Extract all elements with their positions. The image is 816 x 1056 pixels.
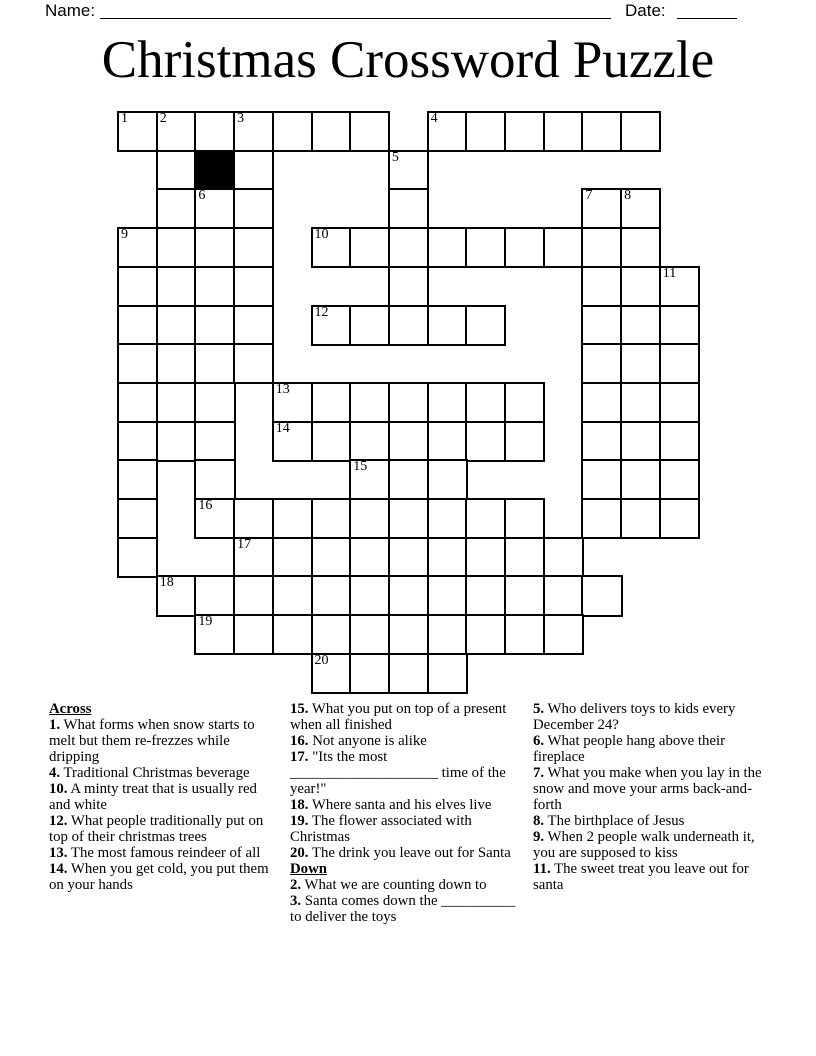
clue: 15. What you put on top of a present whe…	[290, 701, 528, 733]
grid-cell	[349, 421, 390, 462]
down-clues-part2: 5. Who delivers toys to kids every Decem…	[533, 701, 776, 893]
clue: 10. A minty treat that is usually red an…	[49, 781, 282, 813]
grid-cell	[233, 575, 274, 616]
grid-cell	[233, 498, 274, 539]
cell-number: 16	[198, 498, 212, 514]
grid-cell: 17	[233, 537, 274, 578]
grid-cell	[388, 575, 429, 616]
clue: 12. What people traditionally put on top…	[49, 813, 282, 845]
grid-cell	[543, 111, 584, 152]
grid-cell	[194, 227, 235, 268]
grid-cell	[465, 111, 506, 152]
grid-cell	[156, 421, 197, 462]
grid-cell	[117, 459, 158, 500]
grid-cell	[620, 111, 661, 152]
grid-cell	[349, 614, 390, 655]
grid-cell	[543, 537, 584, 578]
grid-cell	[272, 614, 313, 655]
grid-cell: 19	[194, 614, 235, 655]
grid-cell	[233, 227, 274, 268]
grid-cell	[388, 305, 429, 346]
grid-cell	[659, 305, 700, 346]
clue-number: 11.	[533, 861, 551, 877]
grid-cell	[581, 498, 622, 539]
grid-cell	[581, 266, 622, 307]
grid-cell	[388, 266, 429, 307]
cell-number: 4	[431, 111, 438, 127]
clue-number: 10.	[49, 781, 68, 797]
grid-cell	[465, 537, 506, 578]
grid-cell	[465, 421, 506, 462]
grid-cell	[581, 421, 622, 462]
grid-cell: 18	[156, 575, 197, 616]
grid-cell	[156, 266, 197, 307]
grid-cell	[543, 614, 584, 655]
grid-cell	[311, 498, 352, 539]
clue: 20. The drink you leave out for Santa	[290, 845, 528, 861]
grid-cell	[272, 575, 313, 616]
grid-cell	[388, 382, 429, 423]
clue-number: 9.	[533, 829, 544, 845]
grid-cell	[581, 575, 622, 616]
grid-cell	[156, 150, 197, 191]
grid-cell	[311, 111, 352, 152]
grid-cell	[620, 227, 661, 268]
clue: 19. The flower associated with Christmas	[290, 813, 528, 845]
grid-cell	[272, 537, 313, 578]
grid-cell	[156, 382, 197, 423]
cell-number: 2	[160, 111, 167, 127]
cell-number: 13	[276, 382, 290, 398]
grid-cell	[465, 382, 506, 423]
date-label: Date:	[625, 1, 666, 20]
grid-cell: 13	[272, 382, 313, 423]
clue: 6. What people hang above their fireplac…	[533, 733, 776, 765]
grid-cell: 10	[311, 227, 352, 268]
cell-number: 5	[392, 150, 399, 166]
name-label: Name:	[45, 1, 95, 20]
grid-cell	[272, 498, 313, 539]
clue-number: 15.	[290, 701, 309, 717]
grid-cell	[620, 421, 661, 462]
grid-cell	[388, 498, 429, 539]
grid-cell: 20	[311, 653, 352, 694]
clue: 8. The birthplace of Jesus	[533, 813, 776, 829]
grid-cell	[465, 227, 506, 268]
cell-number: 8	[624, 188, 631, 204]
grid-cell	[427, 382, 468, 423]
clue: 11. The sweet treat you leave out for sa…	[533, 861, 776, 893]
grid-cell	[117, 266, 158, 307]
grid-cell	[465, 575, 506, 616]
grid-cell	[427, 498, 468, 539]
grid-cell	[194, 421, 235, 462]
grid-cell	[349, 305, 390, 346]
clue-number: 2.	[290, 877, 301, 893]
grid-cell	[543, 575, 584, 616]
grid-cell	[388, 537, 429, 578]
grid-cell-black	[194, 150, 235, 191]
grid-cell	[117, 498, 158, 539]
cell-number: 15	[353, 459, 367, 475]
grid-cell: 14	[272, 421, 313, 462]
clue-number: 17.	[290, 749, 309, 765]
clue-number: 8.	[533, 813, 544, 829]
grid-cell	[349, 653, 390, 694]
grid-cell	[311, 614, 352, 655]
grid-cell	[388, 614, 429, 655]
clue: 7. What you make when you lay in the sno…	[533, 765, 776, 813]
date-blank-line	[677, 0, 737, 19]
grid-cell	[233, 266, 274, 307]
across-clues-part1: 1. What forms when snow starts to melt b…	[49, 717, 282, 893]
grid-cell	[620, 343, 661, 384]
clue: 13. The most famous reindeer of all	[49, 845, 282, 861]
clue-column-across: Across 1. What forms when snow starts to…	[49, 701, 282, 893]
clue: 3. Santa comes down the __________ to de…	[290, 893, 528, 925]
grid-cell	[504, 537, 545, 578]
grid-cell: 2	[156, 111, 197, 152]
cell-number: 11	[663, 266, 676, 282]
grid-cell: 6	[194, 188, 235, 229]
grid-cell	[620, 266, 661, 307]
clue-number: 20.	[290, 845, 309, 861]
grid-cell: 3	[233, 111, 274, 152]
grid-cell	[311, 421, 352, 462]
page-title: Christmas Crossword Puzzle	[0, 31, 816, 90]
grid-cell	[504, 227, 545, 268]
grid-cell	[272, 111, 313, 152]
grid-cell	[659, 343, 700, 384]
grid-cell	[311, 575, 352, 616]
cell-number: 18	[160, 575, 174, 591]
grid-cell	[156, 343, 197, 384]
grid-cell	[581, 382, 622, 423]
cell-number: 9	[121, 227, 128, 243]
cell-number: 1	[121, 111, 128, 127]
grid-cell	[388, 227, 429, 268]
worksheet-page: Name: Date: Christmas Crossword Puzzle 1…	[0, 0, 816, 1056]
cell-number: 7	[585, 188, 592, 204]
clue: 18. Where santa and his elves live	[290, 797, 528, 813]
clue-number: 16.	[290, 733, 309, 749]
grid-cell	[194, 111, 235, 152]
grid-cell	[659, 421, 700, 462]
grid-cell	[504, 111, 545, 152]
grid-cell	[349, 498, 390, 539]
grid-cell	[388, 188, 429, 229]
grid-cell	[427, 421, 468, 462]
grid-cell	[194, 575, 235, 616]
grid-cell	[581, 459, 622, 500]
grid-cell	[620, 459, 661, 500]
grid-cell: 11	[659, 266, 700, 307]
across-heading: Across	[49, 701, 282, 717]
grid-cell	[620, 498, 661, 539]
grid-cell	[233, 188, 274, 229]
grid-cell	[117, 421, 158, 462]
cell-number: 3	[237, 111, 244, 127]
clue: 1. What forms when snow starts to melt b…	[49, 717, 282, 765]
clue-number: 12.	[49, 813, 68, 829]
grid-cell	[620, 305, 661, 346]
grid-cell	[156, 305, 197, 346]
grid-cell	[465, 498, 506, 539]
grid-cell	[504, 382, 545, 423]
grid-cell	[465, 305, 506, 346]
clue: 17. "Its the most ____________________ t…	[290, 749, 528, 797]
grid-cell	[349, 227, 390, 268]
across-clues-part2: 15. What you put on top of a present whe…	[290, 701, 528, 861]
cell-number: 10	[315, 227, 329, 243]
grid-cell	[504, 421, 545, 462]
grid-cell	[194, 459, 235, 500]
cell-number: 20	[315, 653, 329, 669]
grid-cell	[233, 343, 274, 384]
grid-cell	[427, 653, 468, 694]
clue-number: 3.	[290, 893, 301, 909]
grid-cell	[427, 575, 468, 616]
down-clues-part1: 2. What we are counting down to3. Santa …	[290, 877, 528, 925]
grid-cell	[117, 382, 158, 423]
grid-cell	[388, 421, 429, 462]
clue: 16. Not anyone is alike	[290, 733, 528, 749]
grid-cell	[581, 227, 622, 268]
clue-column-down: 5. Who delivers toys to kids every Decem…	[533, 701, 776, 893]
clue-number: 19.	[290, 813, 309, 829]
grid-cell	[194, 266, 235, 307]
clue: 4. Traditional Christmas beverage	[49, 765, 282, 781]
grid-cell	[233, 614, 274, 655]
grid-cell	[349, 382, 390, 423]
grid-cell	[194, 305, 235, 346]
cell-number: 6	[198, 188, 205, 204]
grid-cell	[427, 459, 468, 500]
cell-number: 17	[237, 537, 251, 553]
grid-cell: 8	[620, 188, 661, 229]
grid-cell: 1	[117, 111, 158, 152]
grid-cell	[194, 382, 235, 423]
grid-cell: 5	[388, 150, 429, 191]
grid-cell	[427, 614, 468, 655]
grid-cell	[349, 575, 390, 616]
clue-number: 13.	[49, 845, 68, 861]
clue: 9. When 2 people walk underneath it, you…	[533, 829, 776, 861]
grid-cell	[465, 614, 506, 655]
clue-number: 18.	[290, 797, 309, 813]
grid-cell	[233, 150, 274, 191]
grid-cell	[117, 343, 158, 384]
grid-cell	[156, 188, 197, 229]
clue: 5. Who delivers toys to kids every Decem…	[533, 701, 776, 733]
clue-number: 6.	[533, 733, 544, 749]
grid-cell	[581, 343, 622, 384]
grid-cell: 7	[581, 188, 622, 229]
grid-cell	[427, 227, 468, 268]
clue-number: 4.	[49, 765, 60, 781]
grid-cell	[620, 382, 661, 423]
grid-cell	[427, 305, 468, 346]
grid-cell	[156, 227, 197, 268]
clue-number: 14.	[49, 861, 68, 877]
clue: 2. What we are counting down to	[290, 877, 528, 893]
down-heading: Down	[290, 861, 528, 877]
grid-cell	[543, 227, 584, 268]
grid-cell	[427, 537, 468, 578]
grid-cell	[659, 382, 700, 423]
name-blank-line	[100, 0, 611, 19]
clue-number: 5.	[533, 701, 544, 717]
clue-number: 7.	[533, 765, 544, 781]
grid-cell	[581, 111, 622, 152]
grid-cell	[349, 111, 390, 152]
grid-cell	[581, 305, 622, 346]
grid-cell	[194, 343, 235, 384]
grid-cell: 16	[194, 498, 235, 539]
cell-number: 12	[315, 305, 329, 321]
grid-cell	[504, 498, 545, 539]
grid-cell	[388, 459, 429, 500]
grid-cell	[504, 614, 545, 655]
grid-cell: 9	[117, 227, 158, 268]
grid-cell	[117, 537, 158, 578]
grid-cell: 4	[427, 111, 468, 152]
clue-column-middle: 15. What you put on top of a present whe…	[290, 701, 528, 925]
grid-cell	[659, 498, 700, 539]
grid-cell: 12	[311, 305, 352, 346]
grid-cell	[349, 537, 390, 578]
clue: 14. When you get cold, you put them on y…	[49, 861, 282, 893]
grid-cell	[388, 653, 429, 694]
cell-number: 14	[276, 421, 290, 437]
grid-cell	[504, 575, 545, 616]
cell-number: 19	[198, 614, 212, 630]
grid-cell	[659, 459, 700, 500]
clue-number: 1.	[49, 717, 60, 733]
grid-cell	[311, 537, 352, 578]
grid-cell	[311, 382, 352, 423]
grid-cell	[117, 305, 158, 346]
grid-cell	[233, 305, 274, 346]
grid-cell: 15	[349, 459, 390, 500]
